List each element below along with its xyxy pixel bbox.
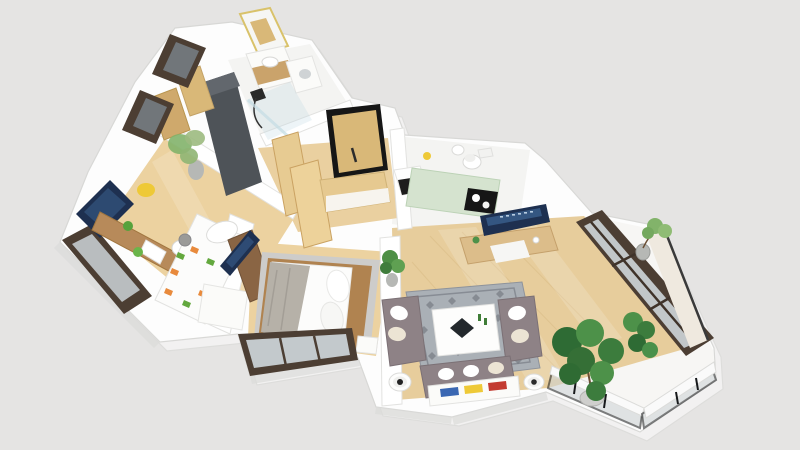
- medium-plant-leaf-4: [642, 342, 658, 358]
- washer-drum: [299, 69, 311, 79]
- living-plant-pot: [386, 273, 398, 287]
- hand-basin: [452, 145, 464, 155]
- console-vase: [533, 237, 539, 243]
- floor-plan-render: [0, 0, 800, 450]
- sink-basin: [262, 57, 278, 67]
- pot-1: [472, 194, 480, 202]
- side-table-right: [524, 374, 544, 390]
- side-table-right-decor: [531, 379, 537, 385]
- toilet-lid: [465, 154, 476, 162]
- master-nightstand: [356, 336, 378, 354]
- large-plant-leaf-3: [598, 338, 624, 364]
- toy-bin-1: [123, 221, 133, 231]
- large-plant-leaf-2: [576, 319, 604, 347]
- large-plant-leaf-7: [586, 381, 606, 401]
- balcony-plant-leaf-3: [642, 227, 654, 239]
- balcony-plant-leaf-2: [658, 224, 672, 238]
- kids-plant-leaf-3: [180, 148, 198, 164]
- toy-bin-2: [133, 247, 143, 257]
- living-plant-leaf-3: [380, 262, 392, 274]
- console-plant: [473, 237, 480, 244]
- pot-2: [483, 202, 490, 209]
- large-plant-leaf-6: [559, 363, 581, 385]
- toilet-tank: [478, 148, 493, 158]
- kettle: [423, 152, 431, 160]
- cooktop: [464, 188, 498, 214]
- yellow-stool: [137, 183, 155, 197]
- kids-plant-leaf-2: [185, 130, 205, 146]
- side-table-left: [389, 373, 411, 391]
- living-plant-leaf-2: [391, 259, 405, 273]
- side-table-left-decor: [397, 379, 403, 385]
- entry-door: [332, 110, 383, 173]
- white-dresser: [198, 284, 248, 330]
- plush-toy: [179, 234, 191, 246]
- floor-plan-svg: [0, 0, 800, 450]
